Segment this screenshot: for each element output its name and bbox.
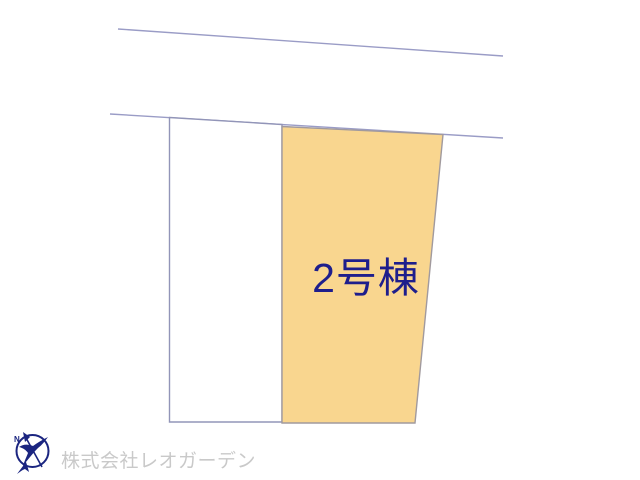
north-label: N [14, 435, 20, 444]
swallow-bird-icon [17, 437, 48, 474]
site-plan-page: 2号棟 N 株式会社レオガーデン [0, 0, 640, 480]
north-arrow-head-icon [23, 432, 30, 442]
company-name: 株式会社レオガーデン [61, 450, 256, 472]
site-plan-canvas: 2号棟 N 株式会社レオガーデン [0, 0, 640, 480]
company-logo: N [14, 432, 49, 474]
road-line-upper [118, 29, 503, 56]
adjacent-lot-parcel [170, 118, 283, 423]
lot-2-label: 2号棟 [312, 255, 420, 301]
